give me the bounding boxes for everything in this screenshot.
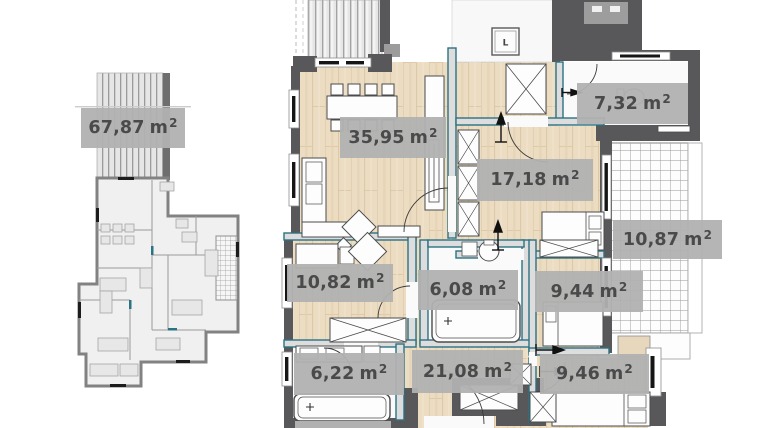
area-label-bathroom-bottom: 6,22m2 bbox=[294, 353, 404, 395]
elevator-letter: L bbox=[503, 39, 509, 49]
area-label-room-left: 10,82m2 bbox=[287, 264, 393, 302]
elevator-icon: L bbox=[492, 28, 519, 55]
dining-table-icon bbox=[327, 96, 397, 119]
balcony-top-hatch bbox=[308, 0, 382, 60]
area-label-living-room: 35,95m2 bbox=[340, 117, 446, 158]
area-label-corridor: 21,08m2 bbox=[412, 350, 523, 393]
area-label-bedroom-middle: 9,44m2 bbox=[535, 271, 643, 312]
washer-icon bbox=[462, 242, 477, 256]
area-label-bedroom-large: 17,18m2 bbox=[477, 159, 593, 201]
area-label-bathroom-middle: 6,08m2 bbox=[418, 270, 518, 310]
floorplan-viewer: L 67,87m2 35,95m2 7,32m2 17,18m2 10,87m2 bbox=[0, 0, 760, 428]
partial-area-label bbox=[295, 421, 391, 428]
area-label-bathroom-top: 7,32m2 bbox=[577, 83, 688, 124]
area-label-balcony-right: 10,87m2 bbox=[613, 220, 722, 259]
area-label-overview: 67,87m2 bbox=[81, 108, 185, 148]
overview-balcony-grid bbox=[216, 236, 237, 300]
chair-icon bbox=[331, 84, 343, 95]
area-label-bedroom-bottom: 9,46m2 bbox=[540, 354, 649, 394]
